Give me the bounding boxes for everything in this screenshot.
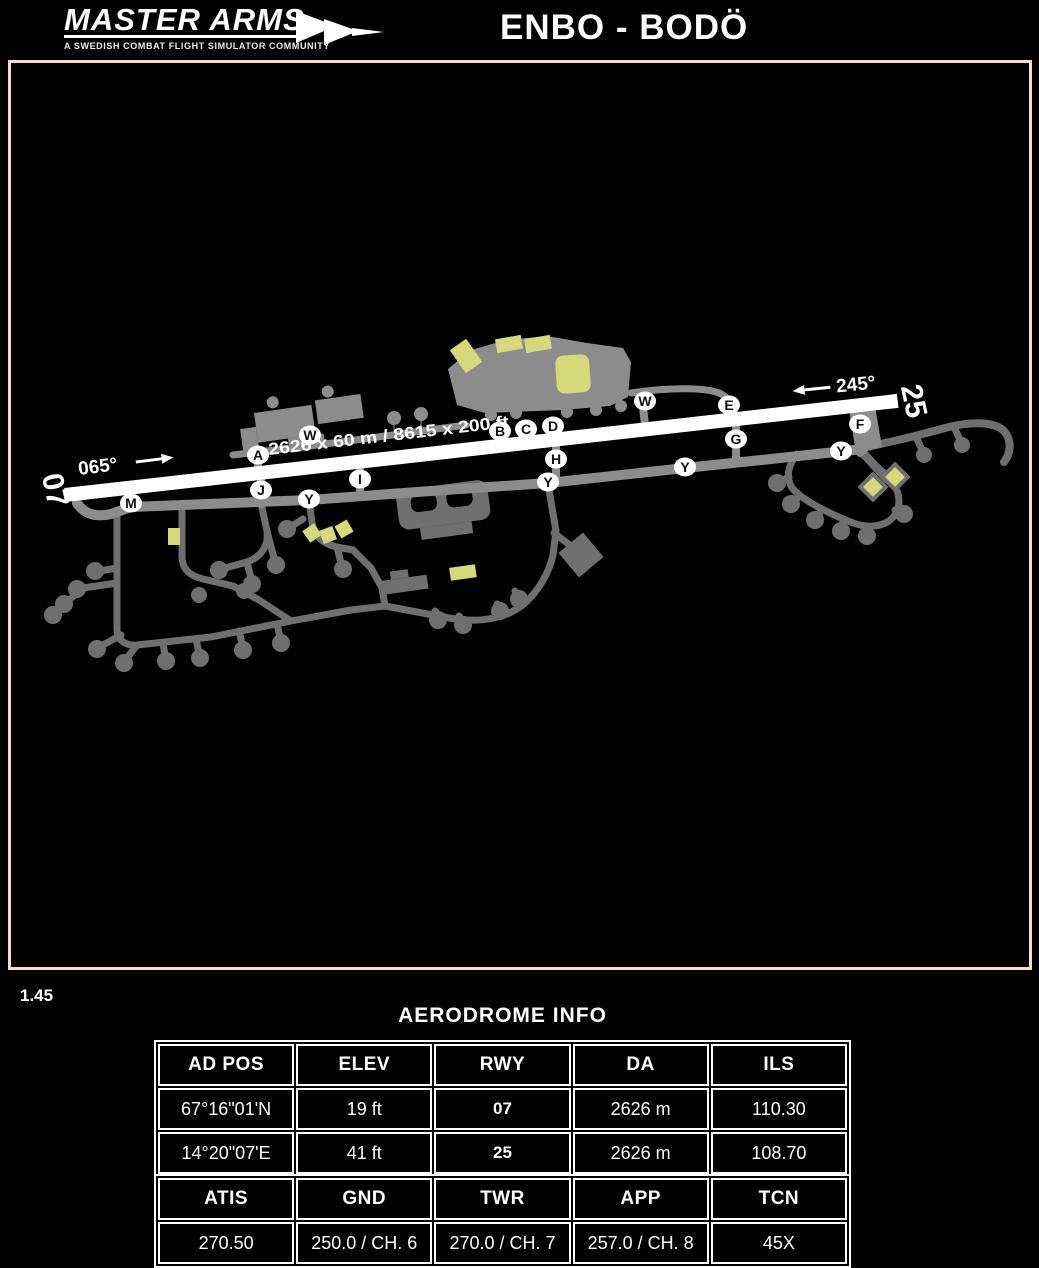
airport-diagram-frame: 07 25 065° 245° 2626 x 60 m / 8615 x 200… [8,60,1032,970]
arrow-right-icon [135,452,174,467]
taxiway-letter-y: Y [543,474,553,490]
rwy-25: 25 [434,1132,570,1174]
taxiway-letter-y: Y [304,491,314,507]
taxiway-letter-a: A [253,447,263,463]
col-tcn: TCN [711,1178,847,1220]
taxiway-letter-b: B [495,423,505,439]
table-row: 270.50 250.0 / CH. 6 270.0 / CH. 7 257.0… [158,1222,847,1264]
arrow-left-icon [792,382,831,396]
taxiway-letter-w: W [303,427,317,443]
rwy-25-label: 25 [894,381,933,421]
tcn-chan: 45X [711,1222,847,1264]
gnd-freq: 250.0 / CH. 6 [296,1222,432,1264]
frequencies-table: ATIS GND TWR APP TCN 270.50 250.0 / CH. … [154,1174,851,1268]
airport-diagram: 07 25 065° 245° 2626 x 60 m / 8615 x 200… [11,63,1029,967]
col-gnd: GND [296,1178,432,1220]
page-number: 1.45 [20,986,53,1006]
elev-07: 19 ft [296,1088,432,1130]
taxiway-letter-e: E [724,397,733,413]
da-07: 2626 m [573,1088,709,1130]
atis-freq: 270.50 [158,1222,294,1264]
taxiway-letter-w: W [638,393,652,409]
taxiway-letter-y: Y [836,443,846,459]
ad-pos-lat: 67°16"01'N [158,1088,294,1130]
taxiway-letter-m: M [125,495,137,511]
col-atis: ATIS [158,1178,294,1220]
taxiway-letter-g: G [731,431,742,447]
taxiway-letter-f: F [856,416,865,432]
page-title: ENBO - BODÖ [500,8,748,48]
table-row: 14°20"07'E 41 ft 25 2626 m 108.70 [158,1132,847,1174]
rwy-07: 07 [434,1088,570,1130]
taxiway-letter-j: J [257,482,265,498]
taxiway-letter-d: D [548,418,558,434]
twr-freq: 270.0 / CH. 7 [434,1222,570,1264]
rwy-07-label: 07 [35,470,74,510]
jet-icon [296,9,426,55]
taxiway-letter-c: C [521,421,531,437]
table-header-row: AD POS ELEV RWY DA ILS [158,1044,847,1086]
col-twr: TWR [434,1178,570,1220]
taxiway-letter-h: H [551,451,561,467]
da-25: 2626 m [573,1132,709,1174]
table-row: 67°16"01'N 19 ft 07 2626 m 110.30 [158,1088,847,1130]
heading-245-label: 245° [835,373,876,398]
col-rwy: RWY [434,1044,570,1086]
master-arms-logo: MASTER ARMS A SWEDISH COMBAT FLIGHT SIMU… [64,3,364,51]
aerodrome-info-title: AERODROME INFO [154,1004,851,1028]
elev-25: 41 ft [296,1132,432,1174]
ils-25: 108.70 [711,1132,847,1174]
app-freq: 257.0 / CH. 8 [573,1222,709,1264]
ils-07: 110.30 [711,1088,847,1130]
table-header-row: ATIS GND TWR APP TCN [158,1178,847,1220]
aerodrome-info-table: AD POS ELEV RWY DA ILS 67°16"01'N 19 ft … [154,1040,851,1178]
col-ad-pos: AD POS [158,1044,294,1086]
taxiway-letter-i: I [358,471,362,487]
heading-065-label: 065° [77,454,119,480]
ad-pos-lon: 14°20"07'E [158,1132,294,1174]
col-ils: ILS [711,1044,847,1086]
col-da: DA [573,1044,709,1086]
col-app: APP [573,1178,709,1220]
col-elev: ELEV [296,1044,432,1086]
taxiway-letter-y: Y [680,459,690,475]
